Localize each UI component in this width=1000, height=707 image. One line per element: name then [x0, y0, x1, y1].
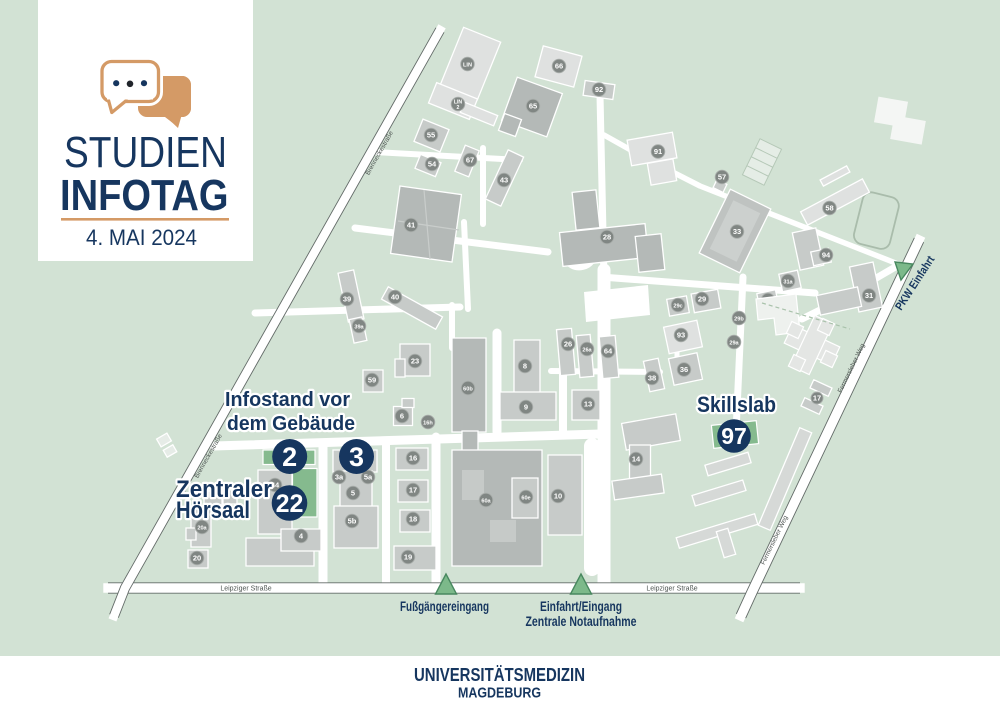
svg-text:17: 17 — [813, 394, 821, 403]
svg-text:5: 5 — [351, 489, 355, 498]
svg-text:3a: 3a — [335, 473, 344, 482]
svg-text:5b: 5b — [348, 517, 357, 526]
svg-text:2: 2 — [457, 105, 460, 111]
svg-text:58: 58 — [825, 204, 833, 213]
svg-text:60e: 60e — [521, 496, 530, 502]
svg-text:9: 9 — [524, 403, 528, 412]
svg-text:23: 23 — [411, 357, 419, 366]
svg-text:10: 10 — [554, 492, 562, 501]
svg-text:dem Gebäude: dem Gebäude — [227, 413, 355, 435]
svg-text:28: 28 — [603, 233, 611, 242]
svg-text:92: 92 — [595, 85, 603, 94]
svg-text:54: 54 — [428, 160, 437, 169]
svg-text:20a: 20a — [197, 526, 207, 532]
svg-text:29b: 29b — [734, 317, 744, 323]
svg-text:13: 13 — [584, 400, 592, 409]
svg-text:64: 64 — [604, 347, 613, 356]
svg-text:LIN: LIN — [463, 63, 472, 69]
svg-text:94: 94 — [822, 251, 831, 260]
svg-text:6: 6 — [400, 412, 404, 421]
svg-text:Skillslab: Skillslab — [697, 392, 776, 417]
svg-text:36: 36 — [680, 365, 688, 374]
svg-text:39: 39 — [343, 295, 351, 304]
svg-text:44: 44 — [271, 481, 280, 490]
svg-text:16h: 16h — [423, 421, 433, 427]
svg-text:31: 31 — [865, 291, 873, 300]
svg-text:65: 65 — [529, 102, 537, 111]
svg-text:5a: 5a — [364, 473, 373, 482]
svg-text:39a: 39a — [354, 325, 364, 331]
svg-text:3: 3 — [349, 442, 364, 472]
svg-text:55: 55 — [427, 131, 435, 140]
svg-text:26a: 26a — [582, 348, 592, 354]
svg-text:29c: 29c — [673, 304, 682, 310]
svg-text:Leipziger Straße: Leipziger Straße — [220, 586, 271, 593]
svg-text:97: 97 — [721, 423, 747, 449]
svg-text:43: 43 — [500, 176, 508, 185]
svg-text:UNIVERSITÄTSMEDIZIN: UNIVERSITÄTSMEDIZIN — [414, 664, 585, 685]
svg-text:59: 59 — [368, 376, 376, 385]
svg-text:MAGDEBURG: MAGDEBURG — [458, 685, 541, 702]
svg-text:8: 8 — [523, 362, 527, 371]
svg-text:33: 33 — [733, 227, 741, 236]
svg-text:38: 38 — [648, 374, 656, 383]
svg-text:19: 19 — [404, 553, 412, 562]
svg-text:Infostand vor: Infostand vor — [225, 389, 350, 411]
svg-text:31a: 31a — [783, 280, 793, 286]
svg-text:60b: 60b — [463, 387, 473, 393]
svg-text:18: 18 — [409, 515, 417, 524]
svg-text:17: 17 — [409, 486, 417, 495]
svg-text:66: 66 — [555, 62, 563, 71]
svg-text:2: 2 — [282, 442, 297, 472]
svg-text:29a: 29a — [729, 341, 739, 347]
svg-text:26: 26 — [564, 340, 572, 349]
svg-text:14: 14 — [632, 455, 641, 464]
svg-text:40: 40 — [391, 293, 399, 302]
svg-text:STUDIEN: STUDIEN — [64, 128, 227, 177]
svg-text:20: 20 — [193, 554, 201, 563]
svg-text:Zentrale Notaufnahme: Zentrale Notaufnahme — [526, 614, 637, 629]
svg-text:60a: 60a — [481, 499, 491, 505]
svg-text:29: 29 — [698, 295, 706, 304]
svg-text:57: 57 — [718, 173, 726, 182]
svg-text:Einfahrt/Eingang: Einfahrt/Eingang — [540, 599, 622, 614]
svg-text:91: 91 — [654, 147, 662, 156]
svg-text:INFOTAG: INFOTAG — [60, 171, 229, 220]
svg-text:93: 93 — [677, 331, 685, 340]
svg-text:Fußgängereingang: Fußgängereingang — [400, 599, 489, 614]
svg-text:22: 22 — [276, 490, 304, 518]
svg-text:4. MAI 2024: 4. MAI 2024 — [86, 225, 197, 250]
svg-text:16: 16 — [409, 454, 417, 463]
svg-text:Hörsaal: Hörsaal — [176, 497, 250, 524]
svg-text:67: 67 — [466, 156, 474, 165]
svg-text:41: 41 — [407, 221, 415, 230]
svg-text:Leipziger Straße: Leipziger Straße — [646, 586, 697, 593]
